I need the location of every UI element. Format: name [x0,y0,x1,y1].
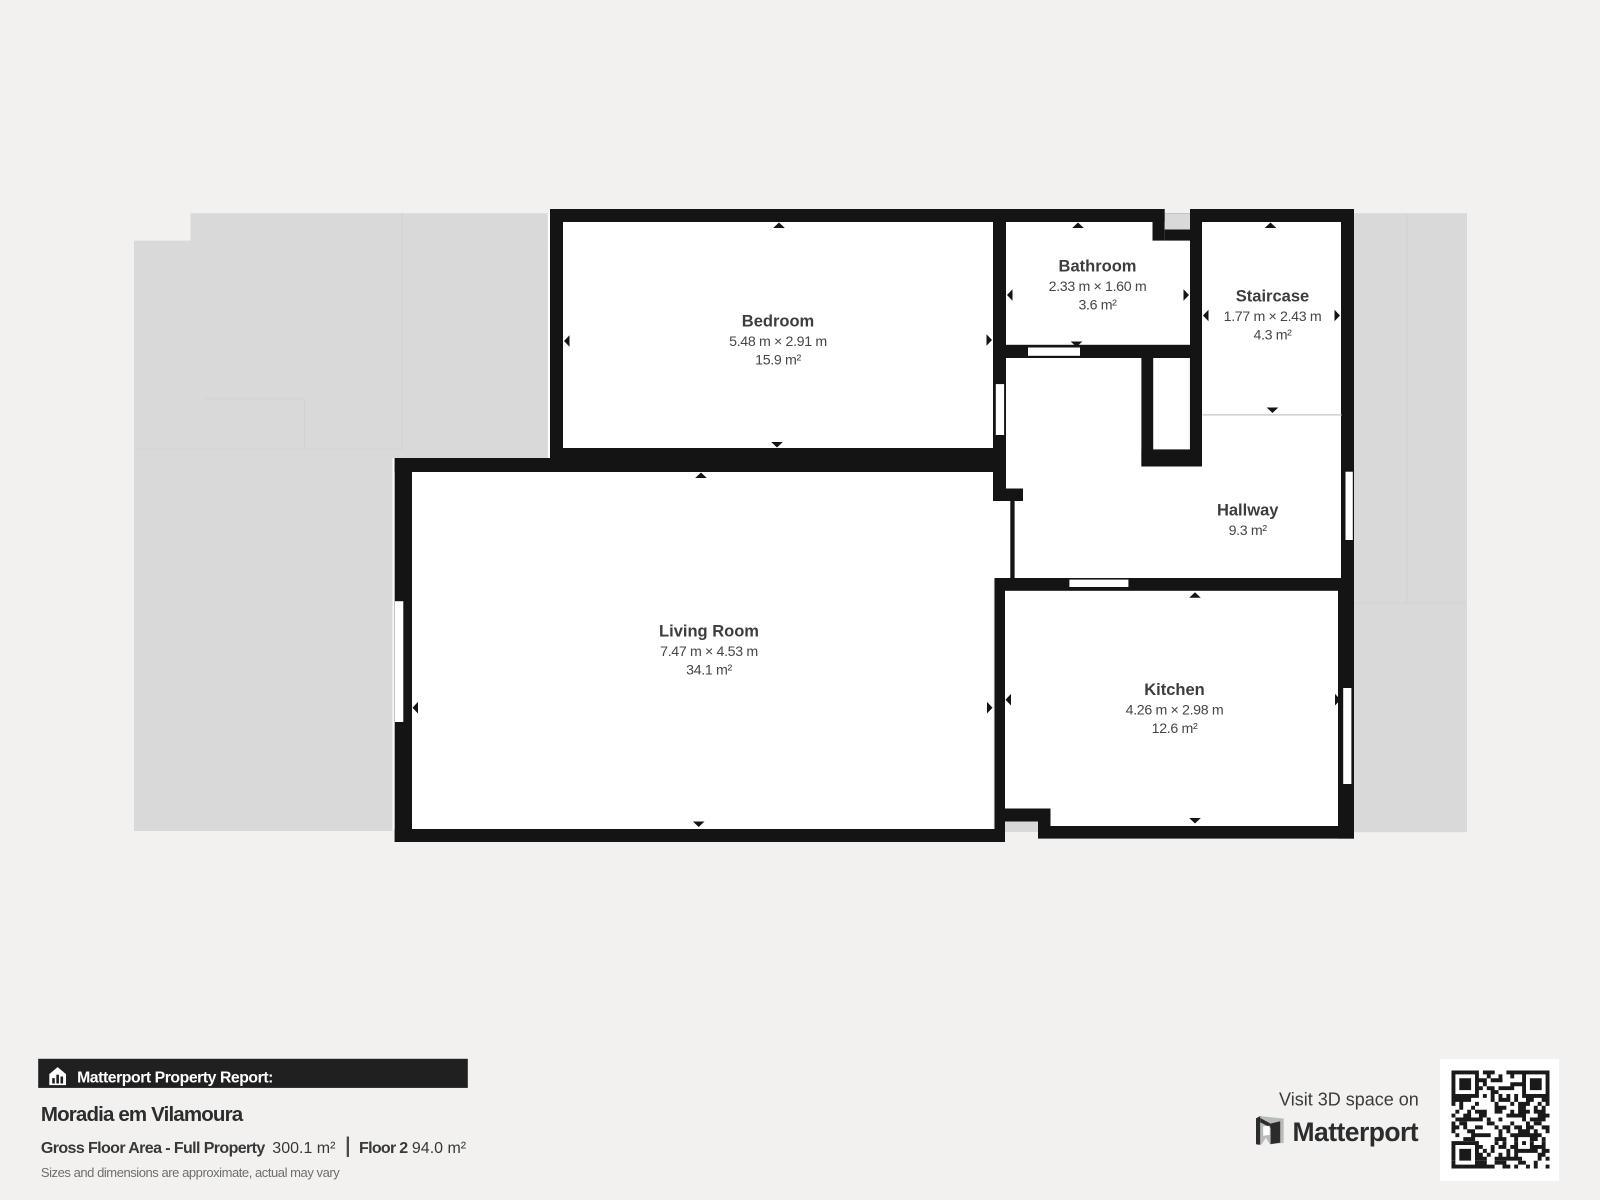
svg-text:9.3 m²: 9.3 m² [1229,523,1268,539]
svg-text:12.6 m²: 12.6 m² [1152,721,1198,737]
svg-text:1.77 m × 2.43 m: 1.77 m × 2.43 m [1224,309,1322,325]
svg-text:2.33 m × 1.60 m: 2.33 m × 1.60 m [1049,279,1147,295]
svg-text:Floor 2: Floor 2 [359,1140,408,1157]
svg-text:15.9 m²: 15.9 m² [755,353,801,369]
svg-text:Sizes and dimensions are appro: Sizes and dimensions are approximate, ac… [41,1165,340,1180]
svg-text:Visit 3D space on: Visit 3D space on [1279,1090,1419,1110]
svg-text:Gross Floor Area - Full Proper: Gross Floor Area - Full Property [41,1140,266,1157]
svg-text:Matterport: Matterport [1293,1117,1419,1147]
svg-text:Bathroom: Bathroom [1059,258,1137,276]
svg-text:Bedroom: Bedroom [742,313,814,331]
svg-text:5.48 m × 2.91 m: 5.48 m × 2.91 m [729,334,827,350]
svg-text:Moradia em Vilamoura: Moradia em Vilamoura [41,1103,244,1126]
svg-text:34.1 m²: 34.1 m² [686,663,732,679]
svg-text:Hallway: Hallway [1217,502,1279,520]
svg-text:Living Room: Living Room [659,623,759,641]
svg-text:4.26 m × 2.98 m: 4.26 m × 2.98 m [1126,703,1224,719]
svg-text:Kitchen: Kitchen [1144,681,1205,699]
svg-text:94.0 m²: 94.0 m² [412,1140,467,1157]
svg-text:Matterport Property Report:: Matterport Property Report: [77,1069,273,1086]
svg-text:300.1 m²: 300.1 m² [272,1140,336,1157]
svg-text:7.47 m × 4.53 m: 7.47 m × 4.53 m [660,644,758,660]
svg-text:4.3 m²: 4.3 m² [1253,328,1292,344]
svg-text:3.6 m²: 3.6 m² [1078,298,1117,314]
svg-text:Staircase: Staircase [1236,288,1309,306]
